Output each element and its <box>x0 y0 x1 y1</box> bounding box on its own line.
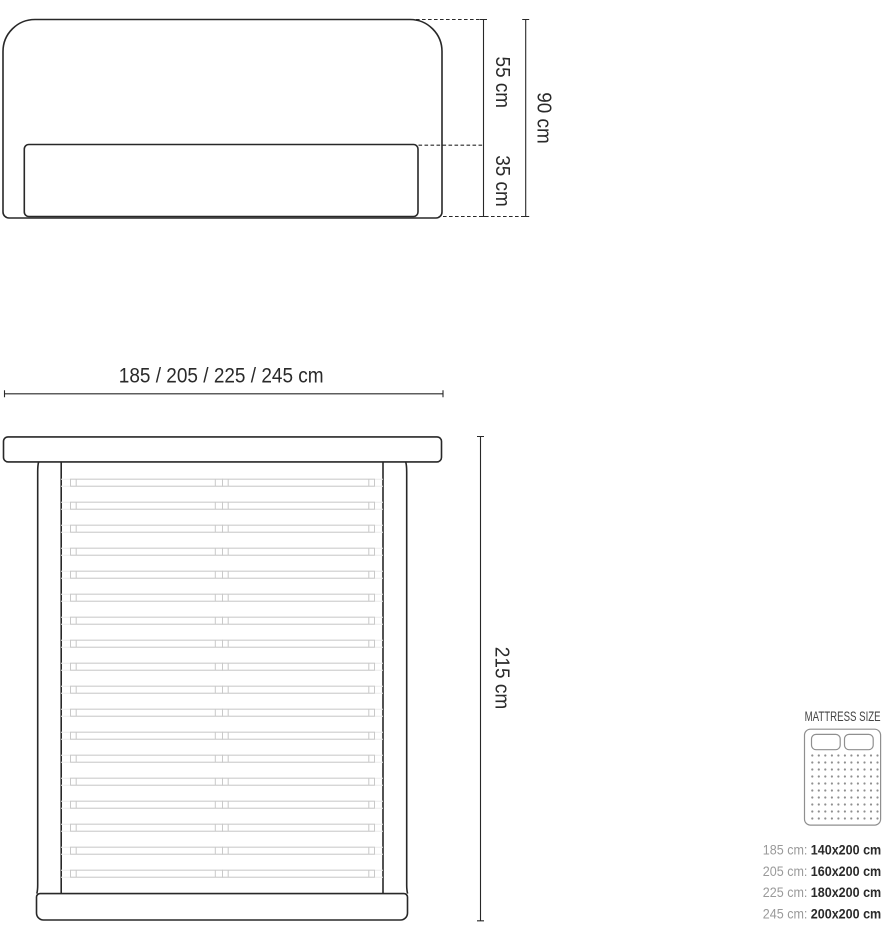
svg-text:185 cm:: 185 cm: <box>763 843 808 859</box>
svg-text:205 cm:: 205 cm: <box>763 864 808 880</box>
svg-text:215 cm: 215 cm <box>491 647 513 710</box>
svg-text:90 cm: 90 cm <box>533 92 555 144</box>
svg-text:35 cm: 35 cm <box>491 155 513 207</box>
svg-text:225 cm:: 225 cm: <box>763 885 808 901</box>
svg-text:MATTRESS SIZE: MATTRESS SIZE <box>805 709 881 724</box>
svg-text:200x200 cm: 200x200 cm <box>811 907 881 923</box>
svg-text:55 cm: 55 cm <box>491 57 513 109</box>
svg-text:245 cm:: 245 cm: <box>763 907 808 923</box>
svg-text:180x200 cm: 180x200 cm <box>811 885 881 901</box>
svg-text:185 / 205 / 225 / 245 cm: 185 / 205 / 225 / 245 cm <box>119 363 324 387</box>
svg-text:140x200 cm: 140x200 cm <box>811 843 881 859</box>
svg-text:160x200 cm: 160x200 cm <box>811 864 881 880</box>
